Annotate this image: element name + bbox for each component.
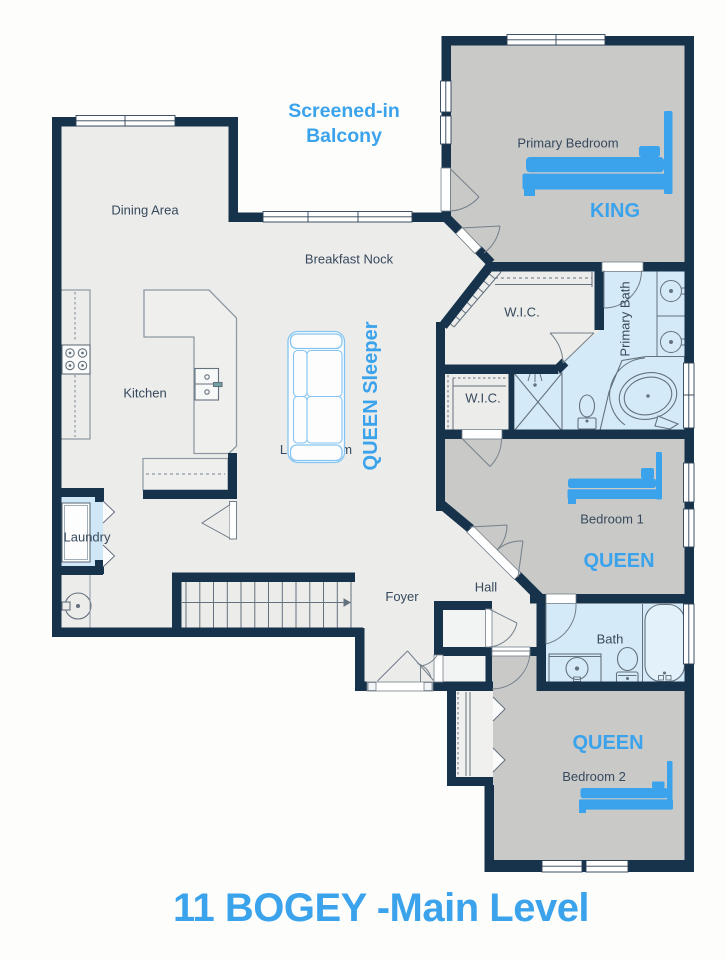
svg-text:Primary Bedroom: Primary Bedroom [517,136,618,151]
svg-text:W.I.C.: W.I.C. [465,391,500,406]
svg-text:Dining Area: Dining Area [111,203,179,218]
svg-text:QUEEN: QUEEN [572,732,643,754]
svg-text:Foyer: Foyer [385,589,419,604]
svg-text:Bedroom 1: Bedroom 1 [580,512,644,527]
svg-text:W.I.C.: W.I.C. [504,305,539,320]
svg-text:Breakfast Nock: Breakfast Nock [305,252,394,267]
svg-text:11 BOGEY -Main Level: 11 BOGEY -Main Level [173,886,589,930]
svg-text:Screened-in: Screened-in [288,100,400,122]
svg-text:Hall: Hall [475,580,498,595]
svg-text:Primary Bath: Primary Bath [618,281,633,356]
svg-text:KING: KING [590,200,640,222]
svg-text:Balcony: Balcony [306,125,382,147]
svg-text:Bath: Bath [597,632,624,647]
svg-text:QUEEN: QUEEN [583,550,654,572]
svg-text:QUEEN Sleeper: QUEEN Sleeper [360,321,382,470]
svg-text:Bedroom 2: Bedroom 2 [562,769,626,784]
svg-text:Laundry: Laundry [64,530,111,545]
svg-text:Kitchen: Kitchen [123,386,166,401]
